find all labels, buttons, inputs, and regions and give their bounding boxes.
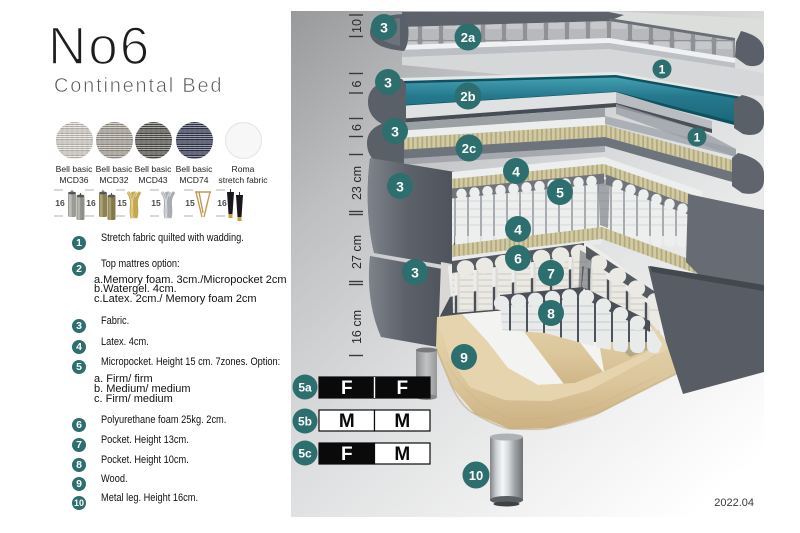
svg-text:3: 3 [411,265,419,281]
svg-text:5a: 5a [298,381,312,395]
svg-text:1: 1 [694,131,701,145]
svg-text:6: 6 [514,251,522,267]
svg-text:F: F [341,444,353,465]
svg-text:M: M [394,411,410,432]
svg-text:F: F [396,378,408,399]
svg-text:F: F [341,378,353,399]
svg-text:6: 6 [350,80,364,87]
svg-text:5c: 5c [298,447,312,461]
svg-text:2022.04: 2022.04 [714,497,754,509]
svg-text:15: 15 [185,198,195,208]
svg-text:4: 4 [514,222,522,238]
svg-text:3: 3 [391,124,399,140]
svg-text:M: M [339,411,355,432]
svg-text:16: 16 [55,198,65,208]
svg-text:9: 9 [460,350,468,366]
svg-text:M: M [394,444,410,465]
svg-text:15: 15 [151,198,161,208]
svg-text:5: 5 [556,185,564,201]
svg-text:2c: 2c [462,141,476,156]
svg-text:23 cm: 23 cm [350,166,364,200]
svg-text:27 cm: 27 cm [350,235,364,269]
svg-text:15: 15 [117,198,127,208]
svg-text:10: 10 [350,19,364,33]
svg-text:1: 1 [659,63,666,77]
svg-text:16: 16 [86,198,96,208]
svg-text:8: 8 [547,306,555,322]
svg-text:7: 7 [547,266,555,282]
svg-text:2a: 2a [461,30,476,45]
svg-text:16: 16 [217,198,227,208]
svg-text:6: 6 [350,124,364,131]
svg-text:16 cm: 16 cm [350,310,364,344]
svg-text:2b: 2b [460,89,475,104]
svg-text:5b: 5b [298,415,312,429]
svg-text:4: 4 [512,164,520,180]
svg-text:3: 3 [384,75,392,91]
svg-text:3: 3 [380,20,388,36]
svg-text:10: 10 [469,468,483,483]
svg-text:3: 3 [396,179,404,195]
